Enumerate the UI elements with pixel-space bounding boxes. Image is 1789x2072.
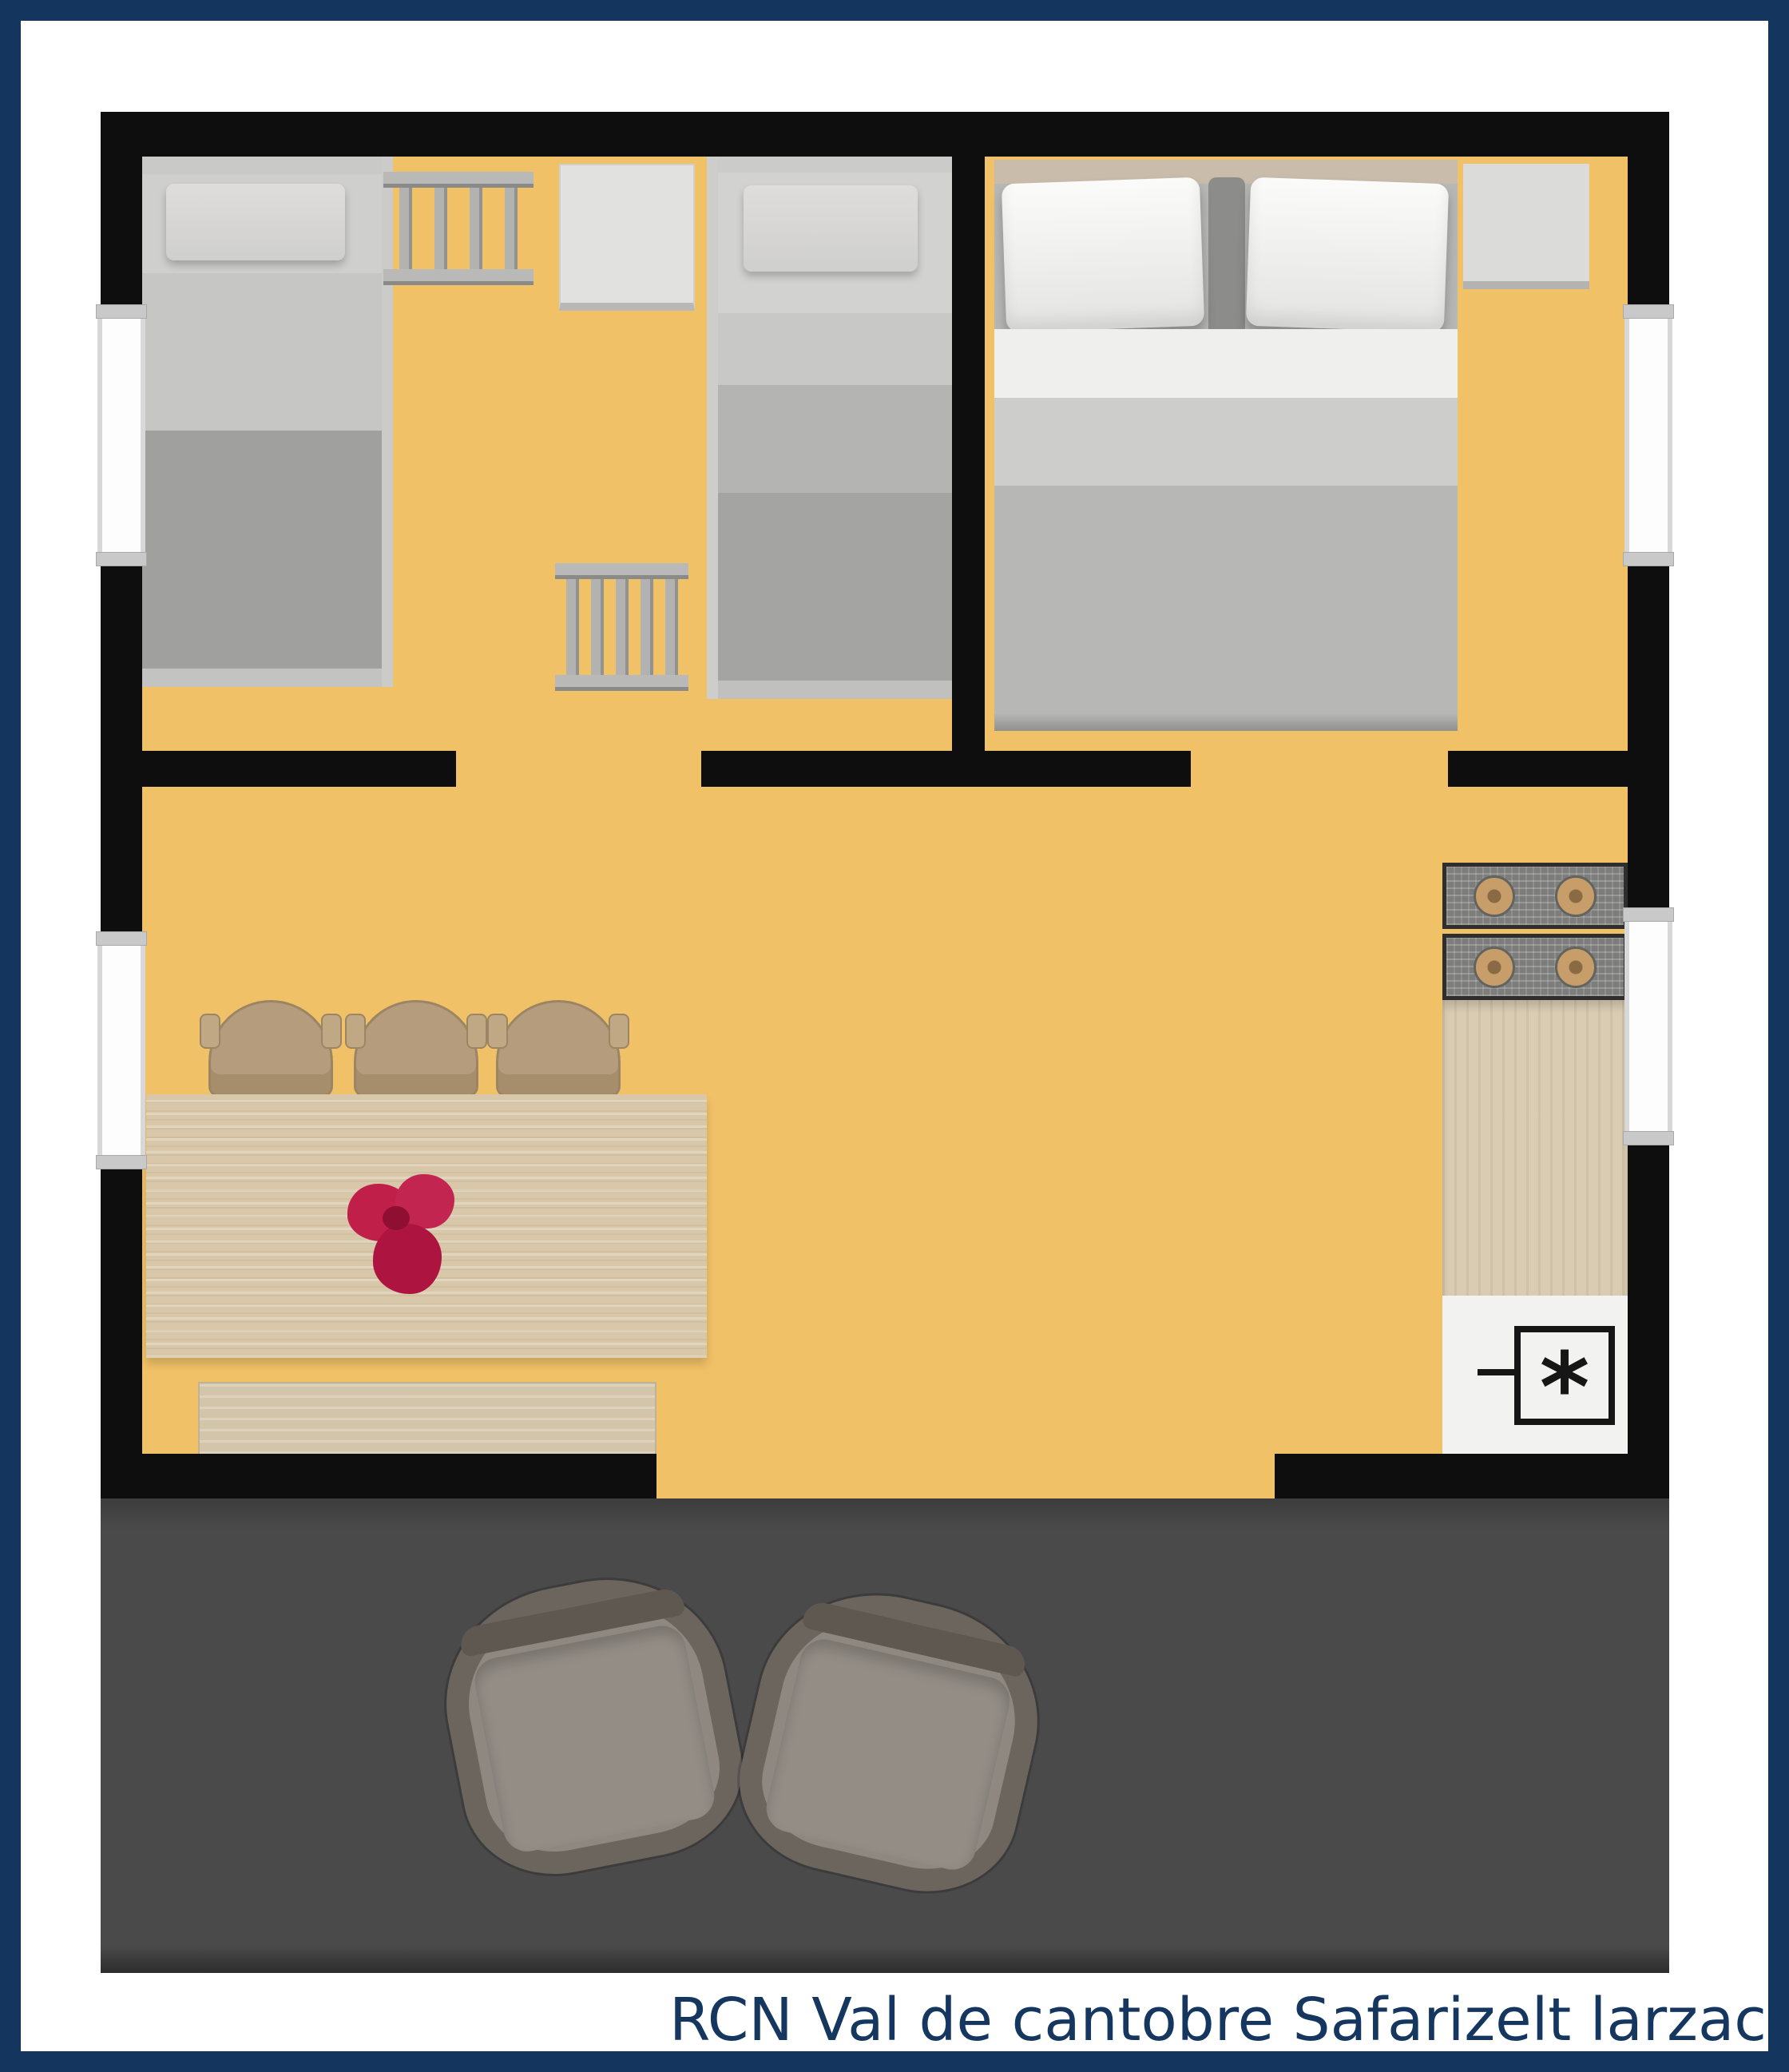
wall-bedroom-divider (952, 157, 985, 787)
window-left-lower (97, 935, 145, 1166)
ladder-rung (434, 188, 447, 269)
ladder-rail (383, 172, 534, 188)
water-heater-area: * (1442, 1296, 1628, 1454)
ladder-rail (555, 563, 688, 579)
burner-icon (1474, 947, 1515, 988)
ladder-rung (505, 188, 518, 269)
ladder-rung (665, 579, 678, 675)
window-right-upper (1624, 308, 1672, 563)
stove-module (1442, 934, 1628, 1000)
pillow (744, 185, 918, 272)
bench (198, 1382, 656, 1455)
ladder-rail (555, 675, 688, 691)
ladder-rung (566, 579, 579, 675)
pillow-right (1246, 177, 1449, 333)
ladder-rung (591, 579, 604, 675)
wall-interior-right (1448, 751, 1669, 787)
floor-plan-image: * RCN Val de cantobre Safarizelt larzac (0, 0, 1789, 2072)
heater-pipe-line (1478, 1369, 1514, 1375)
kitchen-counter (1442, 1000, 1628, 1296)
ladder-rail (383, 269, 534, 285)
chair-back (354, 1000, 478, 1098)
bed-foot-shadow (994, 713, 1458, 731)
pillow (166, 184, 345, 260)
plan-caption: RCN Val de cantobre Safarizelt larzac (169, 1986, 1767, 2054)
ladder-rung (470, 188, 482, 269)
bunk-ladder-bottom (555, 563, 688, 691)
wall-bottom-right (1275, 1454, 1669, 1498)
wall-interior-middle (701, 751, 1191, 787)
wall-bottom-left (101, 1454, 656, 1498)
cabinet (559, 164, 695, 311)
nightstand (1463, 164, 1589, 289)
ladder-rung (641, 579, 653, 675)
blanket (994, 486, 1458, 715)
bunk-ladder-top (383, 172, 534, 285)
flower-shadow (383, 1206, 410, 1230)
burner-icon (1555, 947, 1597, 988)
ladder-rung (399, 188, 412, 269)
bunk-bed-middle (707, 153, 963, 699)
pillow-left (1002, 177, 1204, 333)
window-right-lower (1624, 911, 1672, 1142)
bunk-bed-left (142, 153, 393, 687)
pillow-gap-shadow (1208, 177, 1245, 335)
stove-icon (1442, 863, 1628, 1000)
flower-bouquet-icon (347, 1174, 475, 1302)
asterisk-icon: * (1540, 1341, 1590, 1437)
ladder-rungs (388, 188, 529, 269)
ladder-rungs (560, 579, 684, 675)
sheet-fold (994, 398, 1458, 486)
double-bed (994, 160, 1458, 731)
wall-top (101, 112, 1669, 157)
chair-back (208, 1000, 333, 1098)
window-left-upper (97, 308, 145, 563)
wall-interior-left (101, 751, 456, 787)
ladder-rung (616, 579, 629, 675)
burner-icon (1555, 875, 1597, 917)
stove-module (1442, 863, 1628, 929)
bed-sheet (994, 329, 1458, 398)
flower (373, 1224, 442, 1294)
burner-icon (1474, 875, 1515, 917)
water-heater-icon: * (1514, 1326, 1615, 1425)
chair-back (496, 1000, 621, 1098)
